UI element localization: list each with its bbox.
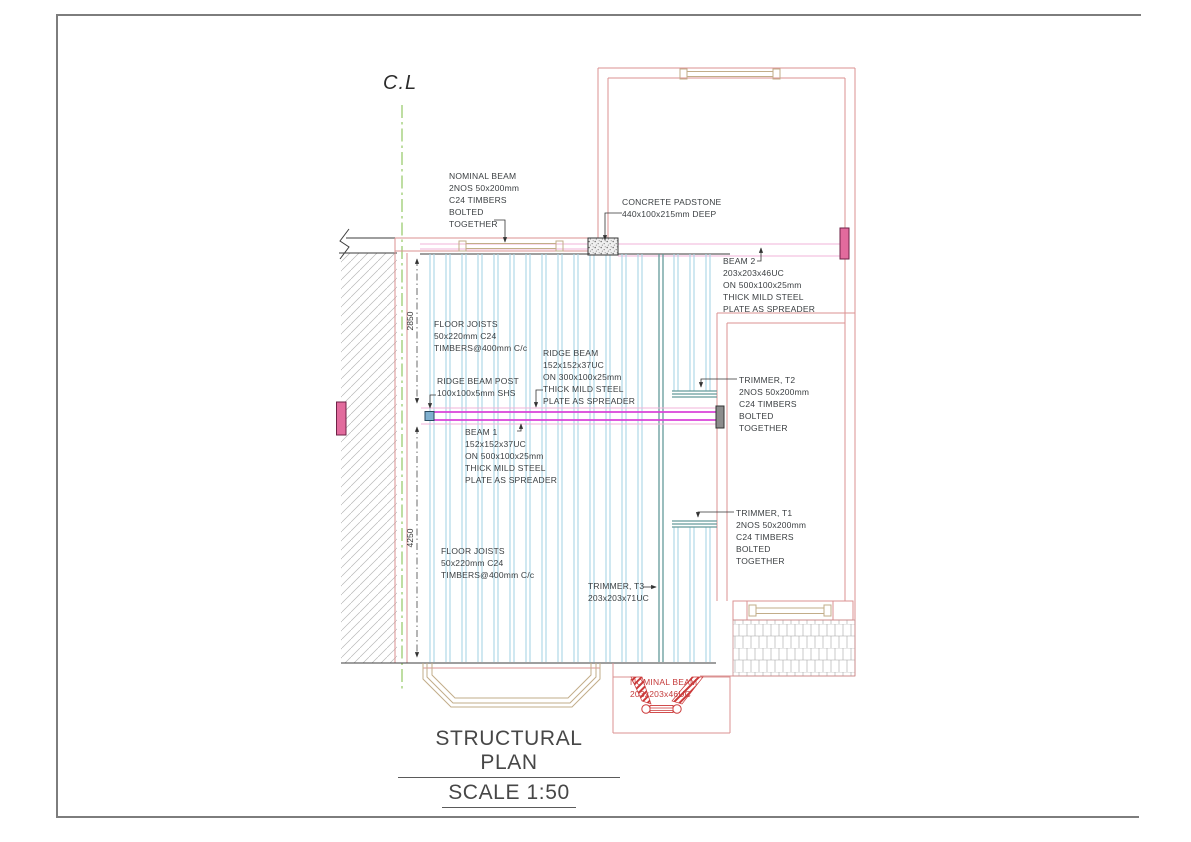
bay-window xyxy=(423,663,600,707)
drawing-scale: SCALE 1:50 xyxy=(442,781,576,808)
label-trimmer-t1: TRIMMER, T1 2NOS 50x200mm C24 TIMBERS BO… xyxy=(736,507,806,567)
label-beam-1: BEAM 1 152x152x37UC ON 500x100x25mm THIC… xyxy=(465,426,557,486)
label-floor-joists-lower: FLOOR JOISTS 50x220mm C24 TIMBERS@400mm … xyxy=(441,545,534,581)
dimension-text-4250: 4250 xyxy=(405,518,417,558)
trimmer-t2-line xyxy=(672,391,717,397)
room-b-window-lintel xyxy=(749,605,831,616)
label-beam-2: BEAM 2 203x203x46UC ON 500x100x25mm THIC… xyxy=(723,255,815,315)
trimmer-t3-line xyxy=(659,254,663,662)
label-nominal-beam-bottom: NOMINAL BEAM 203x203x46UC xyxy=(630,676,708,700)
drawing-title-block: STRUCTURAL PLAN SCALE 1:50 xyxy=(398,727,620,808)
label-ridge-beam: RIDGE BEAM 152x152x37UC ON 300x100x25mm … xyxy=(543,347,635,407)
structural-plan-canvas xyxy=(0,0,1191,842)
beam-1-lines xyxy=(421,408,717,424)
bearing-left xyxy=(337,402,347,435)
drawing-sheet: C.L NOMINAL BEAM 2NOS 50x200mm C24 TIMBE… xyxy=(0,0,1191,842)
ridge-beam-post-square xyxy=(425,412,434,421)
centerline-label: C.L xyxy=(383,72,417,95)
label-concrete-padstone: CONCRETE PADSTONE 440x100x215mm DEEP xyxy=(622,196,721,220)
drawing-title: STRUCTURAL PLAN xyxy=(398,727,620,778)
label-trimmer-t2: TRIMMER, T2 2NOS 50x200mm C24 TIMBERS BO… xyxy=(739,374,809,434)
label-ridge-beam-post: RIDGE BEAM POST 100x100x5mm SHS xyxy=(437,375,519,399)
existing-wall-hatch xyxy=(339,229,407,663)
trimmer-t1-line xyxy=(672,521,717,527)
label-trimmer-t3: TRIMMER, T3 203x203x71UC xyxy=(588,580,649,604)
label-floor-joists-upper: FLOOR JOISTS 50x220mm C24 TIMBERS@400mm … xyxy=(434,318,527,354)
label-nominal-beam-top: NOMINAL BEAM 2NOS 50x200mm C24 TIMBERS B… xyxy=(449,170,519,230)
beam-end-plate xyxy=(716,406,724,428)
bearing-right xyxy=(840,228,849,259)
bottom-wall xyxy=(341,663,716,668)
brick-paving xyxy=(733,620,855,676)
concrete-padstone-block xyxy=(588,238,618,255)
dimension-text-2850: 2850 xyxy=(405,301,417,341)
